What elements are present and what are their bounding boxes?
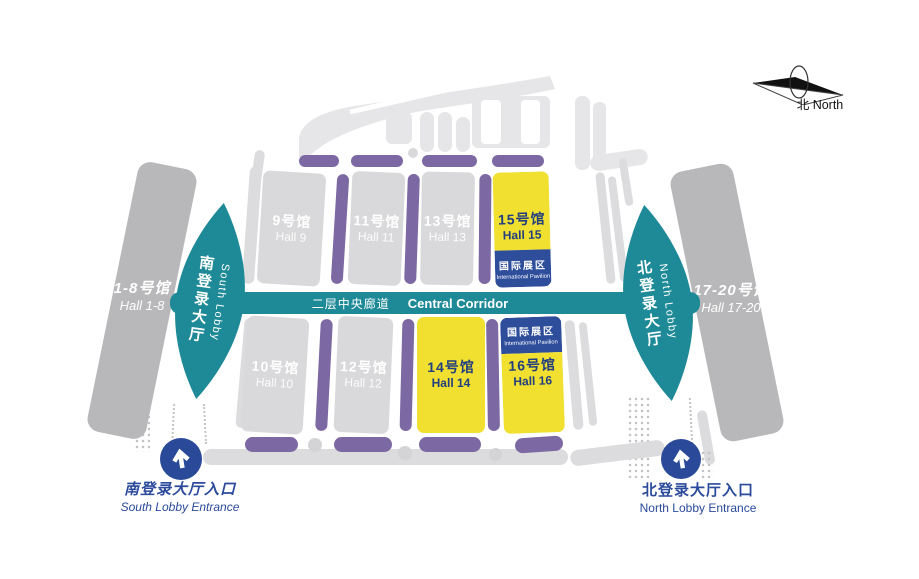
- hall-12-region: 12号馆 Hall 12: [333, 316, 393, 434]
- south-entrance-marker: [160, 438, 202, 480]
- central-corridor-label: 二层中央廊道 Central Corridor: [280, 292, 540, 314]
- hall-10-region: 10号馆 Hall 10: [241, 315, 310, 435]
- purple-pill: [299, 155, 339, 167]
- purple-pill: [334, 437, 392, 452]
- gray-dot: [308, 438, 322, 452]
- purple-pill: [245, 437, 298, 452]
- up-arrow-icon: [666, 444, 697, 475]
- hall-15-region: 15号馆 Hall 15 国际展区 International Pavilion: [493, 171, 552, 287]
- exhibition-map: 1-8号馆 Hall 1-8 17-20号馆 Hall 17-20 9号馆 Ha…: [0, 0, 919, 579]
- hall-12-name-en: Hall 12: [344, 375, 382, 392]
- gray-dot: [489, 448, 502, 461]
- hall-15-name-en: Hall 15: [503, 228, 542, 245]
- gray-dot: [398, 446, 412, 460]
- purple-pill: [419, 437, 481, 452]
- hall-16-region: 国际展区 International Pavilion 16号馆 Hall 16: [500, 316, 565, 434]
- purple-pill: [422, 155, 477, 167]
- hall-14-name-en: Hall 14: [432, 376, 471, 392]
- hall-11-name-zh: 11号馆: [353, 211, 401, 231]
- purple-divider: [479, 174, 492, 284]
- south-entrance-label: 南登录大厅入口 South Lobby Entrance: [80, 481, 280, 515]
- gray-dot: [408, 148, 418, 158]
- dot-grid: [627, 396, 651, 478]
- hall-9-name-en: Hall 9: [275, 229, 307, 246]
- dotted-path: [203, 404, 207, 444]
- hall-15-name-zh: 15号馆: [498, 210, 546, 229]
- hall-14-name-zh: 14号馆: [427, 358, 475, 376]
- hall-13-region: 13号馆 Hall 13: [420, 172, 475, 286]
- dotted-path: [689, 398, 693, 444]
- purple-pill: [492, 155, 544, 167]
- purple-divider: [315, 319, 333, 431]
- international-pavilion-badge: 国际展区 International Pavilion: [500, 316, 562, 354]
- purple-divider: [404, 174, 420, 284]
- hall-11-region: 11号馆 Hall 11: [348, 171, 406, 286]
- hall-13-name-zh: 13号馆: [424, 211, 472, 230]
- hall-9-name-zh: 9号馆: [272, 210, 312, 231]
- hall-16-name-en: Hall 16: [513, 374, 552, 391]
- purple-divider: [400, 319, 415, 431]
- international-pavilion-badge: 国际展区 International Pavilion: [495, 249, 552, 287]
- purple-divider: [331, 174, 350, 285]
- hall-16-name-zh: 16号馆: [508, 355, 556, 375]
- compass-label: 北 North: [775, 94, 865, 113]
- north-entrance-label: 北登录大厅入口 North Lobby Entrance: [598, 482, 798, 516]
- north-entrance-marker: [661, 439, 701, 479]
- hall-13-name-en: Hall 13: [429, 229, 467, 245]
- hall-11-name-en: Hall 11: [358, 229, 395, 246]
- hall-9-region: 9号馆 Hall 9: [257, 170, 327, 287]
- dot-grid: [700, 450, 714, 480]
- hall-12-name-zh: 12号馆: [340, 357, 388, 377]
- hall-14-region: 14号馆 Hall 14: [417, 317, 485, 433]
- up-arrow-icon: [165, 443, 197, 475]
- hall-10-name-en: Hall 10: [255, 375, 293, 393]
- purple-divider: [486, 319, 500, 431]
- purple-pill: [351, 155, 403, 167]
- walkway: [569, 439, 665, 466]
